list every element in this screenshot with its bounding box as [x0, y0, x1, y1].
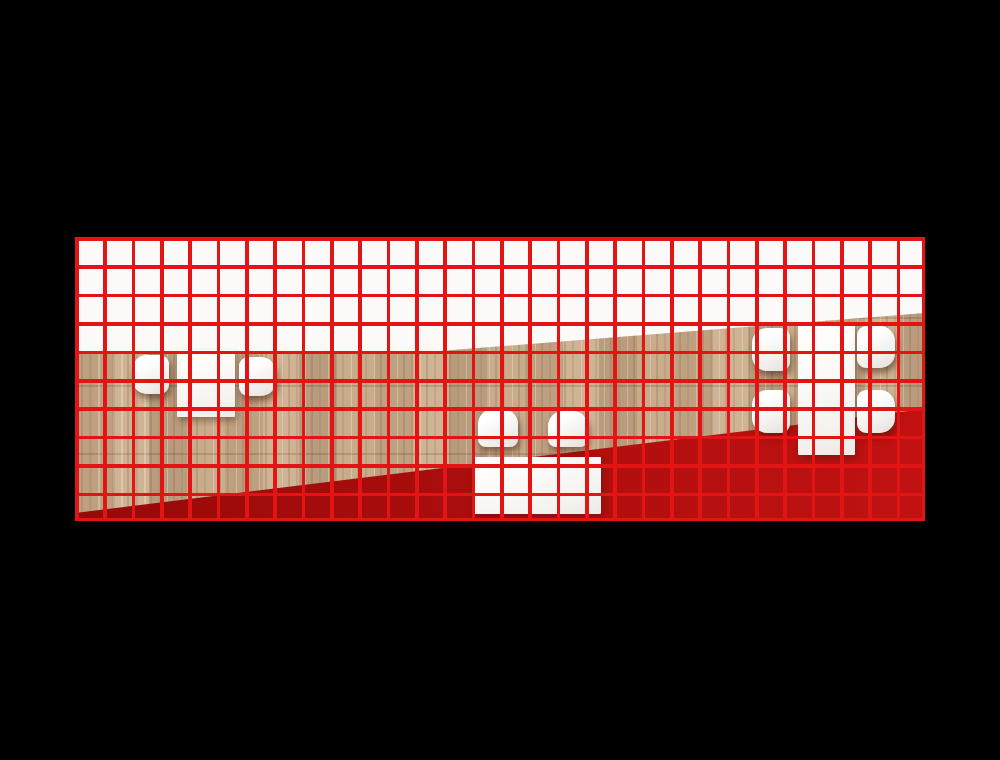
left-chair-east: [239, 357, 276, 396]
right-chair-ne: [857, 326, 895, 368]
render-canvas: [0, 0, 1000, 760]
right-chair-se: [857, 390, 895, 433]
left-chair-west: [132, 355, 169, 394]
furniture-layer: [75, 237, 925, 521]
right-chair-sw: [752, 390, 790, 433]
mid-table: [473, 457, 601, 514]
mid-chair-east: [548, 411, 588, 447]
floor-plan: [75, 237, 925, 521]
right-chair-nw: [752, 328, 790, 371]
left-table: [177, 350, 235, 417]
mid-chair-west: [478, 409, 518, 447]
right-table: [798, 324, 855, 455]
